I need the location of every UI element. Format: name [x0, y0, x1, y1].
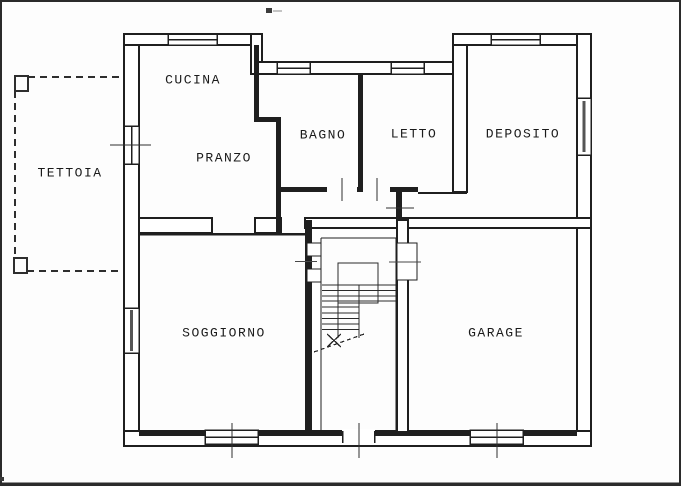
windows: [124, 34, 591, 444]
room-label-garage: GARAGE: [468, 326, 524, 341]
floor-plan-drawing: [0, 0, 681, 487]
print-mark: [266, 8, 282, 13]
room-label-letto: LETTO: [391, 127, 438, 142]
room-label-cucina: CUCINA: [165, 73, 221, 88]
room-label-pranzo: PRANZO: [196, 151, 252, 166]
room-label-soggiorno: SOGGIORNO: [182, 326, 266, 341]
exterior-walls: [124, 34, 591, 446]
room-label-deposito: DEPOSITO: [486, 127, 560, 142]
floor-plan-page: TETTOIA CUCINA PRANZO BAGNO LETTO DEPOSI…: [0, 0, 681, 487]
room-label-bagno: BAGNO: [300, 128, 347, 143]
room-label-tettoia: TETTOIA: [37, 166, 102, 181]
staircase: [314, 263, 396, 352]
